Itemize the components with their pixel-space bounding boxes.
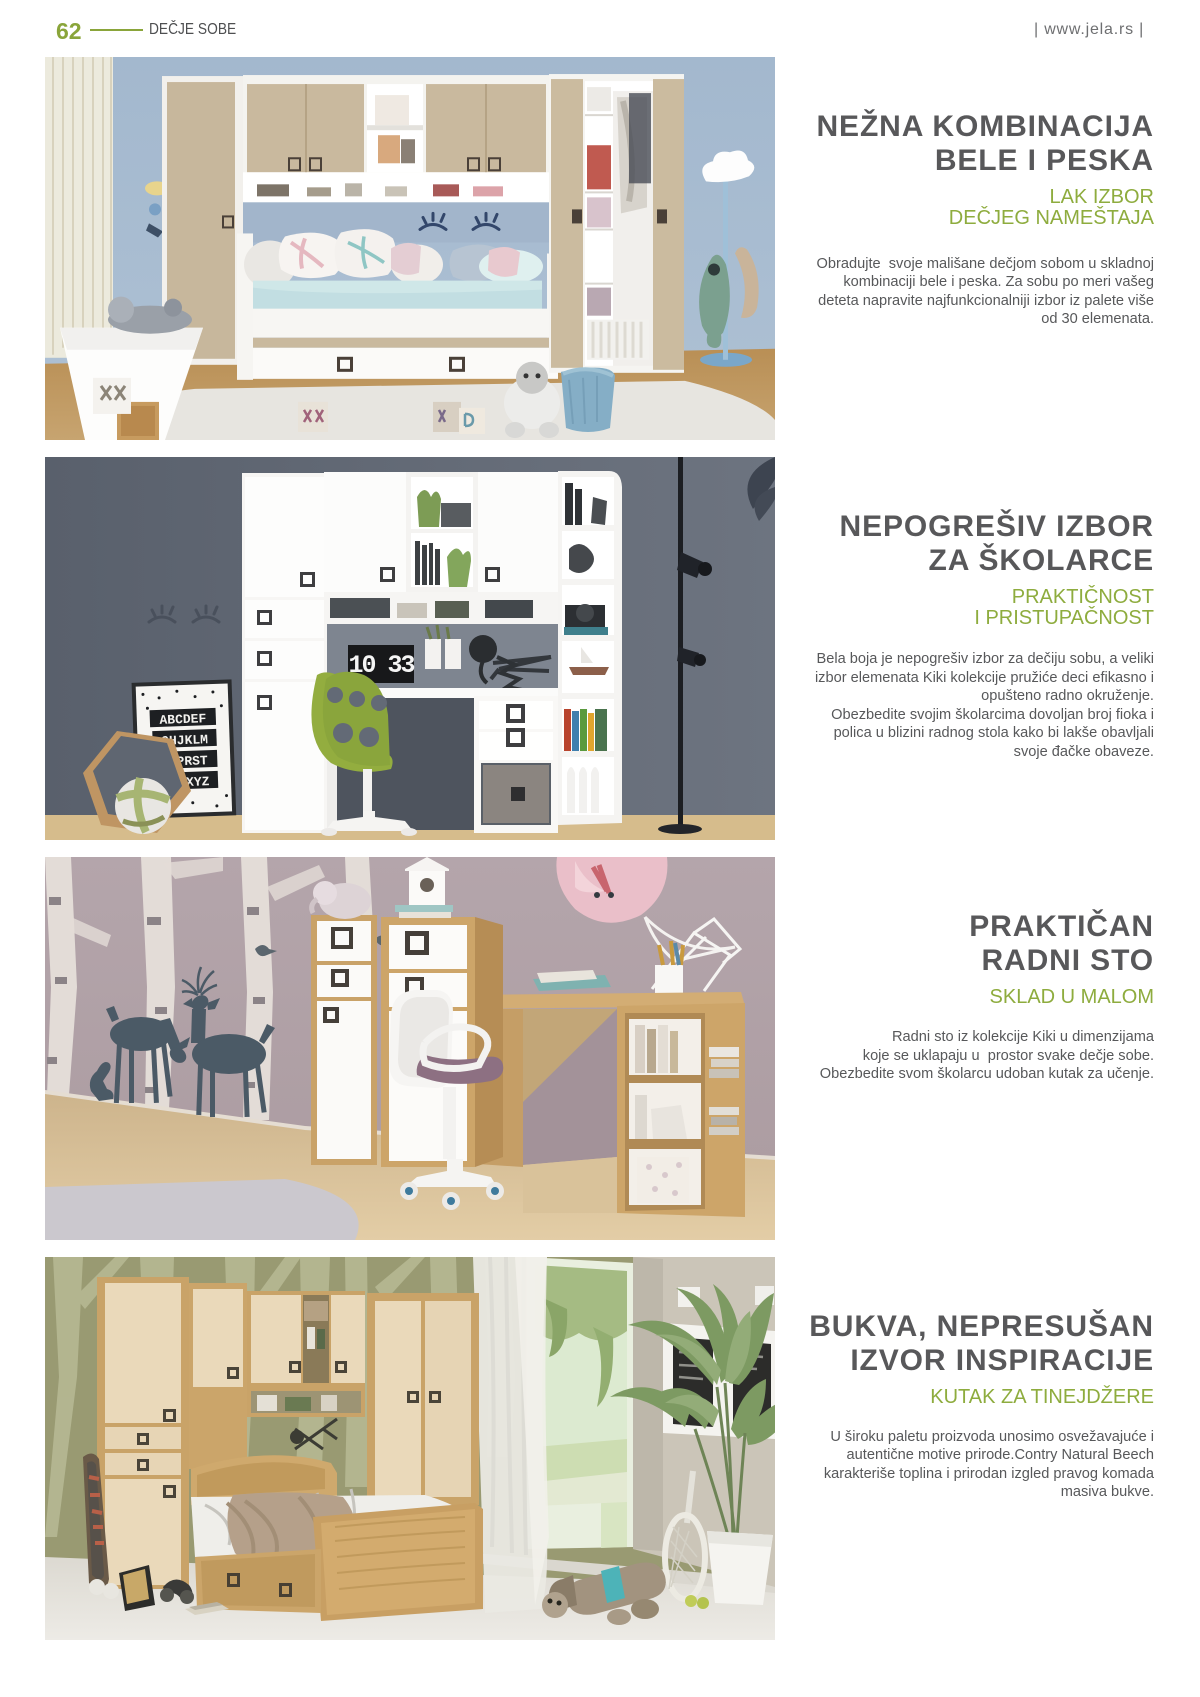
svg-text:ABCDEF: ABCDEF [159,711,207,728]
